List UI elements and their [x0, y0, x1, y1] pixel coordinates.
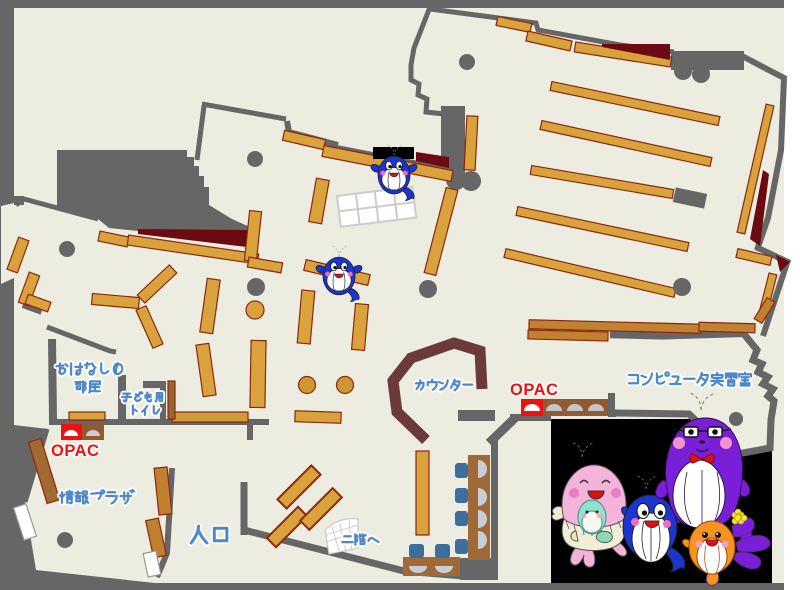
svg-text:OPAC: OPAC [51, 442, 99, 460]
svg-text:OPAC: OPAC [510, 381, 558, 399]
